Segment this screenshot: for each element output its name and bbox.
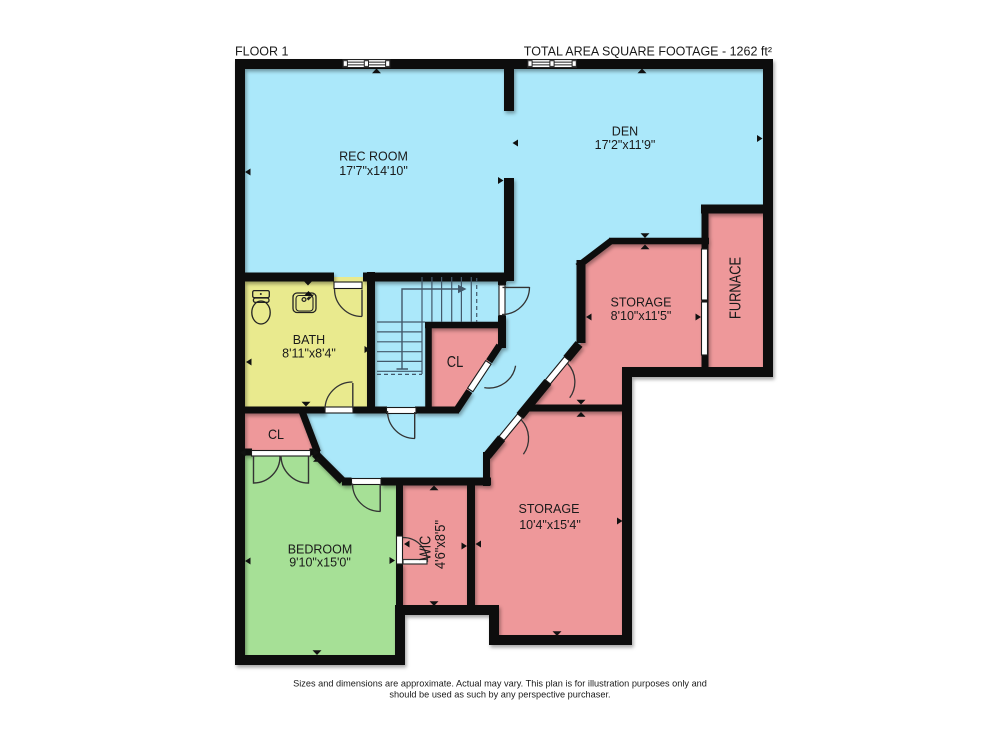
svg-text:DEN: DEN bbox=[612, 125, 638, 139]
svg-text:CL: CL bbox=[268, 426, 284, 442]
svg-text:17'2"x11'9": 17'2"x11'9" bbox=[595, 138, 656, 152]
svg-text:9'10"x15'0": 9'10"x15'0" bbox=[289, 556, 351, 570]
svg-text:8'10"x11'5": 8'10"x11'5" bbox=[611, 309, 672, 323]
svg-text:should be used as such by any: should be used as such by any perspectiv… bbox=[389, 689, 610, 699]
svg-text:BEDROOM: BEDROOM bbox=[288, 543, 353, 557]
svg-text:BATH: BATH bbox=[293, 333, 325, 347]
svg-text:REC ROOM: REC ROOM bbox=[339, 150, 408, 164]
svg-text:4'6"x8'5": 4'6"x8'5" bbox=[432, 520, 449, 569]
svg-text:10'4"x15'4": 10'4"x15'4" bbox=[519, 518, 581, 532]
svg-text:8'11"x8'4": 8'11"x8'4" bbox=[282, 347, 336, 361]
svg-text:FURNACE: FURNACE bbox=[728, 257, 745, 319]
svg-text:17'7"x14'10": 17'7"x14'10" bbox=[339, 164, 408, 178]
svg-text:TOTAL AREA SQUARE FOOTAGE - 12: TOTAL AREA SQUARE FOOTAGE - 1262 ft² bbox=[524, 45, 772, 59]
svg-text:Sizes and dimensions are appro: Sizes and dimensions are approximate. Ac… bbox=[293, 678, 707, 688]
svg-text:STORAGE: STORAGE bbox=[519, 502, 580, 516]
svg-text:CL: CL bbox=[447, 354, 464, 371]
svg-text:STORAGE: STORAGE bbox=[611, 296, 672, 310]
svg-text:FLOOR 1: FLOOR 1 bbox=[235, 45, 289, 59]
